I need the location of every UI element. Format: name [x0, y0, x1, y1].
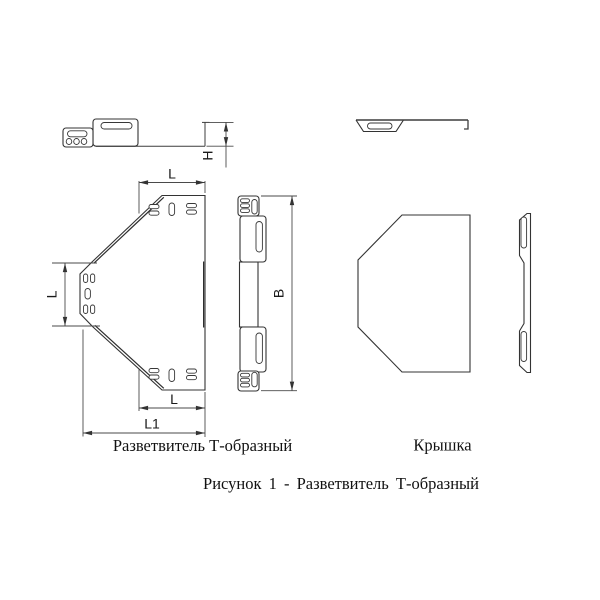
- arrow-left-icon: [139, 406, 148, 410]
- arrow-up-icon: [224, 122, 228, 131]
- splitter-end-view: [238, 196, 266, 391]
- mounting-slot: [84, 305, 88, 314]
- profile-middle-section: [240, 262, 259, 327]
- cover-edge-hook: [464, 120, 468, 129]
- mounting-slot: [256, 333, 262, 364]
- splitter-body-outline: [80, 196, 205, 391]
- perforation-hole: [81, 139, 87, 145]
- arrow-down-icon: [224, 137, 228, 146]
- dim-label-l-top: L: [168, 166, 176, 182]
- dim-label-l1: L1: [144, 416, 160, 432]
- mounting-slot: [169, 203, 175, 216]
- mounting-slot: [521, 217, 527, 248]
- arrow-right-icon: [196, 180, 205, 184]
- mounting-slot: [149, 369, 159, 373]
- cover-side-view: [356, 120, 468, 132]
- arrow-right-icon: [196, 431, 205, 435]
- mounting-slot: [85, 289, 90, 300]
- mounting-slot: [101, 123, 132, 130]
- perforation-hole: [66, 139, 72, 145]
- mounting-slot: [91, 305, 95, 314]
- mounting-slot: [187, 204, 197, 208]
- dim-label-h: H: [200, 150, 216, 160]
- splitter-plan-view: [80, 196, 205, 391]
- arrow-down-icon: [290, 382, 294, 391]
- cover-end-view: [520, 214, 531, 373]
- technical-drawing: H: [0, 0, 600, 600]
- arrow-up-icon: [290, 196, 294, 205]
- mounting-slot: [149, 211, 159, 215]
- arrow-left-icon: [83, 431, 92, 435]
- mounting-slot: [187, 369, 197, 373]
- part-label-cover: Крышка: [413, 436, 472, 455]
- splitter-side-view: [63, 119, 210, 147]
- arrow-down-icon: [63, 317, 67, 326]
- arrow-right-icon: [196, 406, 205, 410]
- perforation-hole: [241, 373, 250, 377]
- perforation-hole: [241, 199, 250, 203]
- part-label-splitter: Разветвитель Т-образный: [113, 436, 293, 455]
- perforation-hole: [74, 139, 80, 145]
- mounting-slot: [521, 332, 527, 362]
- mounting-slot: [169, 369, 175, 382]
- perforation-hole: [241, 204, 250, 208]
- cover-plan-view: [358, 215, 470, 372]
- mounting-slot: [252, 200, 257, 215]
- mounting-slot: [149, 205, 159, 209]
- mounting-slot: [368, 123, 393, 129]
- mounting-slot: [256, 222, 262, 253]
- dim-label-l-bottom: L: [170, 391, 178, 407]
- drawing-canvas: H: [0, 0, 600, 600]
- figure-caption: Рисунок 1 - Разветвитель Т-образный: [203, 474, 479, 493]
- perforation-hole: [241, 383, 250, 387]
- mounting-slot: [149, 375, 159, 379]
- dim-label-b: B: [271, 289, 287, 298]
- perforation-hole: [241, 378, 250, 382]
- arrow-up-icon: [63, 263, 67, 272]
- dim-label-l-branch: L: [44, 290, 60, 298]
- mounting-slot: [187, 376, 197, 380]
- mounting-slot: [91, 274, 95, 283]
- mounting-slot: [187, 210, 197, 214]
- mounting-slot: [252, 372, 257, 387]
- arrow-left-icon: [139, 180, 148, 184]
- perforation-hole: [241, 209, 250, 213]
- mounting-slot: [84, 274, 88, 283]
- mounting-slot: [68, 131, 88, 137]
- cover-body-outline: [358, 215, 470, 372]
